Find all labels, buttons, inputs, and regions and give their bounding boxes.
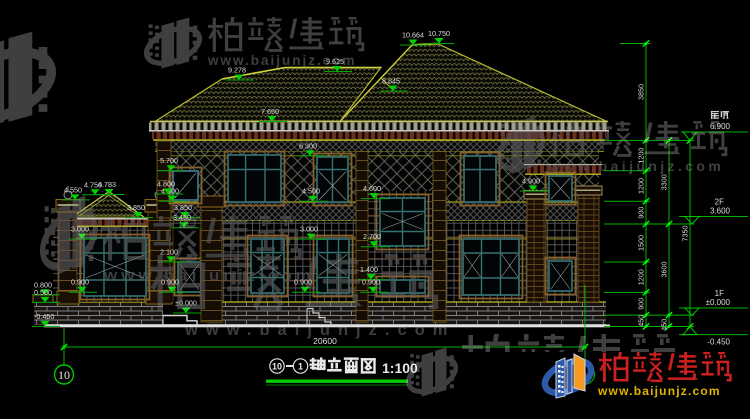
svg-text:3.850: 3.850 [174, 203, 192, 212]
svg-text:4.800: 4.800 [157, 180, 175, 189]
svg-text:6.300: 6.300 [299, 141, 317, 150]
svg-text:-0.450: -0.450 [707, 338, 730, 347]
svg-text:4.600: 4.600 [363, 184, 381, 193]
svg-text:0.900: 0.900 [71, 278, 89, 287]
svg-text:www.baijunjz.com: www.baijunjz.com [207, 53, 357, 68]
svg-text:4.550: 4.550 [64, 185, 82, 194]
svg-text:1F: 1F [715, 289, 724, 298]
svg-text:www.baijunjz.com: www.baijunjz.com [597, 384, 721, 398]
svg-text:2.700: 2.700 [363, 232, 381, 241]
svg-text:3850: 3850 [637, 84, 646, 100]
svg-text:5.700: 5.700 [160, 156, 178, 165]
svg-text:www.baijunjz.com: www.baijunjz.com [548, 158, 724, 174]
svg-text:3300: 3300 [660, 174, 669, 190]
svg-text:7350: 7350 [681, 225, 690, 241]
svg-text:www.baijunjz.com: www.baijunjz.com [103, 266, 315, 285]
svg-text:0.900: 0.900 [362, 278, 380, 287]
svg-text:3.000: 3.000 [300, 225, 318, 234]
svg-text:10.664: 10.664 [402, 31, 424, 40]
svg-text:10.750: 10.750 [428, 29, 450, 38]
svg-text:4.900: 4.900 [522, 177, 540, 186]
svg-text:7.650: 7.650 [261, 107, 279, 116]
svg-text:3.850: 3.850 [127, 203, 145, 212]
svg-text:1200: 1200 [637, 178, 646, 194]
svg-text:4.500: 4.500 [302, 187, 320, 196]
svg-text:10: 10 [272, 362, 282, 372]
svg-text:2F: 2F [715, 198, 724, 207]
svg-text:4.750: 4.750 [84, 180, 102, 189]
svg-text:0.500: 0.500 [34, 288, 52, 297]
svg-text:450: 450 [637, 315, 646, 327]
svg-text:10: 10 [58, 368, 70, 382]
svg-text:8.845: 8.845 [382, 77, 400, 86]
svg-text:900: 900 [637, 298, 646, 310]
svg-text:3.600: 3.600 [710, 207, 731, 216]
svg-text:450: 450 [660, 319, 669, 331]
svg-text:3600: 3600 [660, 262, 669, 278]
svg-text:1200: 1200 [637, 269, 646, 285]
svg-text:1.400: 1.400 [360, 265, 378, 274]
svg-text:www.baijunjz.com: www.baijunjz.com [184, 321, 455, 339]
svg-text:1: 1 [298, 362, 303, 372]
svg-text:-0.450: -0.450 [34, 312, 54, 321]
svg-text:900: 900 [637, 207, 646, 219]
svg-text:±0.000: ±0.000 [706, 298, 731, 307]
svg-text:1500: 1500 [637, 235, 646, 251]
